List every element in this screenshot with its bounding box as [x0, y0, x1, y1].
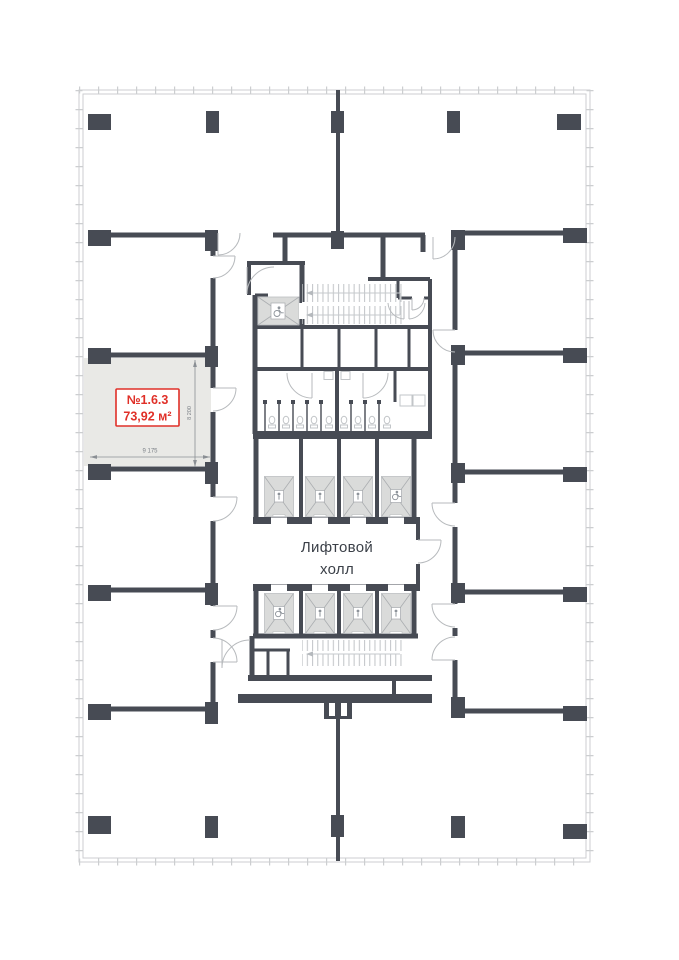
elevator-door-gap: [299, 303, 305, 319]
elevator-door-gap: [312, 518, 328, 525]
toilet-area: [263, 372, 425, 432]
unit-area: 73,92 м²: [123, 410, 171, 424]
door-arc: [218, 233, 240, 255]
sink: [400, 395, 412, 406]
door-arc: [418, 540, 441, 563]
column: [88, 230, 111, 246]
stair-lower: [302, 640, 404, 666]
facade-frame: [79, 90, 590, 862]
column: [447, 111, 460, 133]
elevator-car: [306, 594, 335, 634]
door-arc: [432, 503, 455, 526]
toilet-fixtures: [269, 416, 391, 428]
elevator-door-gap: [388, 518, 404, 525]
elevator-hall-label: Лифтовой холл: [301, 539, 373, 578]
door-arc: [412, 298, 424, 310]
floor-plan: №1.6.3 73,92 м² 9 175 8 200 Лифтовой хол…: [0, 0, 679, 960]
column: [563, 824, 587, 839]
door-arc: [213, 638, 237, 662]
sink: [324, 372, 333, 380]
elevator-car: [344, 477, 373, 517]
door-arc: [363, 373, 388, 398]
wall-band: [238, 694, 432, 703]
door-arc: [247, 267, 274, 294]
elevator-car: [344, 594, 373, 634]
elevator-car-accessible: [265, 594, 294, 634]
pilaster-slot: [329, 701, 335, 716]
column: [206, 111, 219, 133]
elevator-car-accessible: [382, 477, 411, 517]
door-arc: [409, 303, 425, 319]
elevator-car: [265, 477, 294, 517]
elevator-door-gap: [388, 585, 404, 592]
walls-right-wing: [455, 233, 585, 711]
door-arc: [213, 497, 237, 521]
elevator-car: [306, 477, 335, 517]
accessible-elevator-vestibule: [258, 297, 305, 325]
dim-height-label: 8 200: [187, 406, 193, 420]
floor-plan-canvas: №1.6.3 73,92 м² 9 175 8 200 Лифтовой хол…: [0, 0, 679, 960]
wall: [302, 327, 409, 369]
wall-band: [253, 431, 432, 439]
column: [88, 704, 111, 720]
column: [451, 816, 465, 838]
door-arc: [287, 373, 312, 398]
elevator-hall-line2: холл: [320, 561, 354, 578]
elevator-door-gap: [271, 585, 287, 592]
column: [88, 585, 111, 601]
sink: [341, 372, 350, 380]
elevator-car: [382, 594, 411, 634]
elevator-door-gap: [271, 518, 287, 525]
wall: [250, 650, 290, 676]
door-arc: [213, 388, 236, 411]
elevator-hall-line1: Лифтовой: [301, 539, 373, 556]
unit-number: №1.6.3: [127, 393, 169, 407]
stair-upper: [302, 284, 404, 324]
column: [88, 464, 111, 480]
door-arc: [432, 604, 455, 627]
column: [205, 816, 218, 838]
unit-info[interactable]: №1.6.3 73,92 м²: [116, 389, 179, 426]
stall-partition: [351, 403, 379, 431]
dim-width-label: 9 175: [142, 449, 158, 455]
door-arc: [213, 606, 237, 630]
column: [88, 114, 111, 130]
elevator-door-gap: [312, 585, 328, 592]
sink: [413, 395, 425, 406]
elevator-door-gap: [350, 585, 366, 592]
door-arc: [213, 256, 235, 278]
pilaster-slot: [341, 701, 347, 716]
column: [557, 114, 581, 130]
elevator-door-gap: [350, 518, 366, 525]
door-arc: [432, 637, 455, 660]
column: [88, 816, 111, 834]
